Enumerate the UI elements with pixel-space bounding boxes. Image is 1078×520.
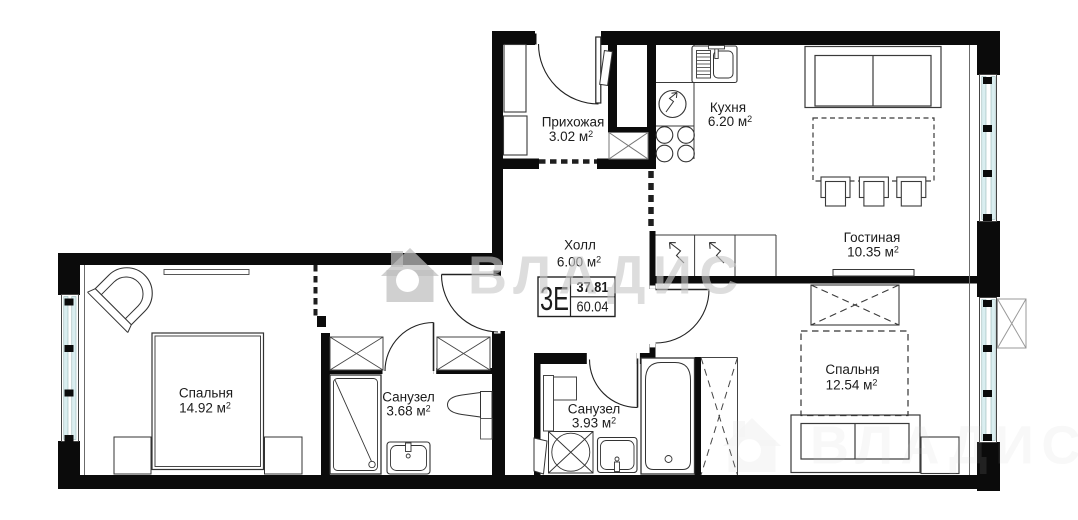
svg-text:ВЛАДИС: ВЛАДИС xyxy=(810,416,1078,476)
svg-text:Санузел: Санузел xyxy=(382,390,435,405)
svg-text:Кухня: Кухня xyxy=(710,100,746,115)
svg-text:10.35 м2: 10.35 м2 xyxy=(847,245,899,260)
svg-text:3.02 м2: 3.02 м2 xyxy=(549,129,593,144)
svg-text:ВЛАДИС: ВЛАДИС xyxy=(468,246,746,306)
svg-text:Гостиная: Гостиная xyxy=(844,230,901,245)
svg-text:Спальня: Спальня xyxy=(179,386,233,401)
svg-text:Санузел: Санузел xyxy=(568,402,621,417)
svg-text:Спальня: Спальня xyxy=(825,362,879,377)
svg-text:3.68 м2: 3.68 м2 xyxy=(386,404,430,419)
svg-text:Прихожая: Прихожая xyxy=(542,115,605,130)
svg-text:14.92 м2: 14.92 м2 xyxy=(179,401,231,416)
svg-text:3.93 м2: 3.93 м2 xyxy=(572,416,616,431)
svg-text:6.20 м2: 6.20 м2 xyxy=(708,114,752,129)
svg-text:12.54 м2: 12.54 м2 xyxy=(826,378,878,393)
